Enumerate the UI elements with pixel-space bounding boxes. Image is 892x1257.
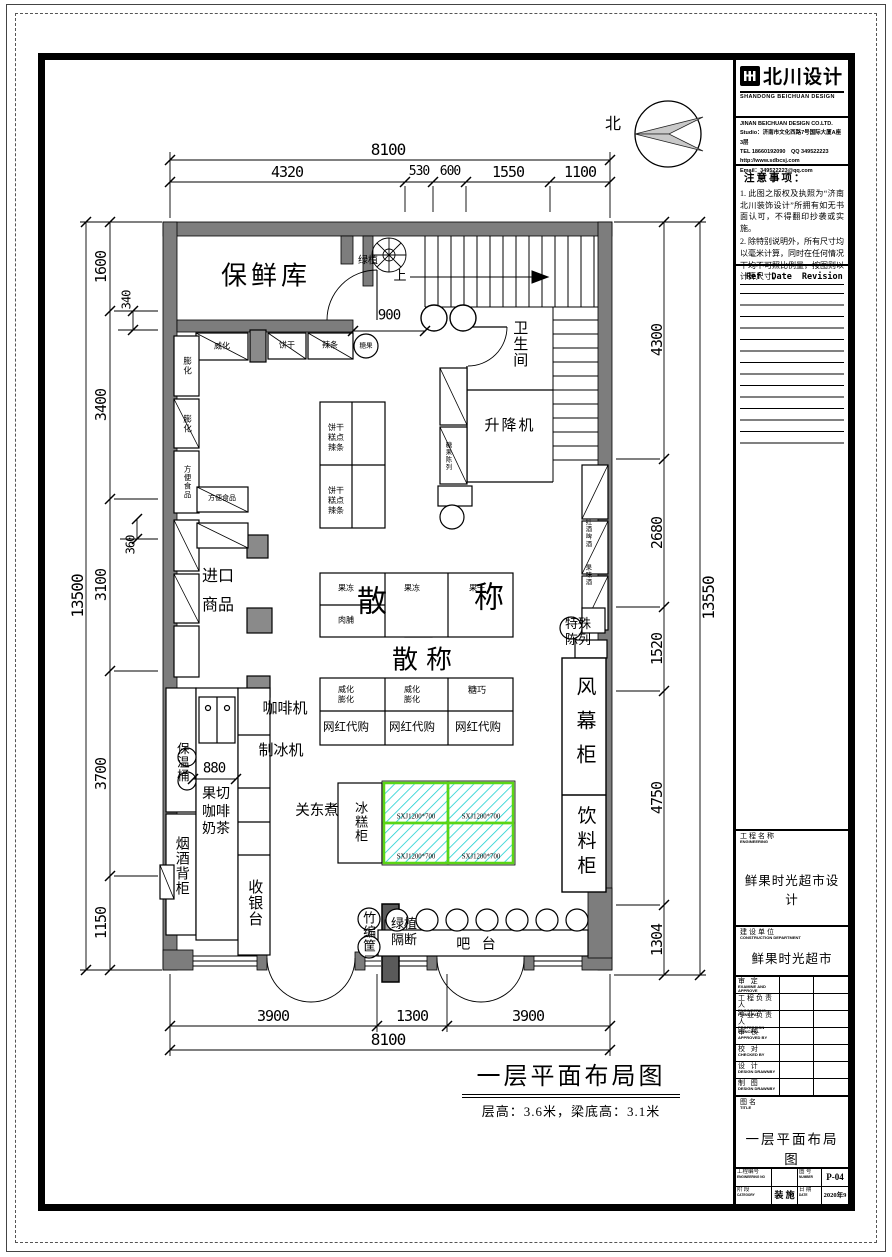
bulk-jelly-1: 果冻 xyxy=(338,585,354,594)
special-display-label: 特殊陈列 xyxy=(565,616,591,649)
fct-l1: 果切 xyxy=(202,787,230,802)
ice-cabinet-label: 冰糕柜 xyxy=(353,801,367,843)
signoff-row: 校 对CHECKED BY xyxy=(736,1045,848,1062)
title-block: 北川设计 SHANDONG BEICHUAN DESIGN JINAN BEIC… xyxy=(733,60,848,1204)
dim-right-2: 2680 xyxy=(649,517,666,549)
revision-table: Ref Date Revision xyxy=(736,266,848,831)
daigou-2: 网红代购 xyxy=(389,722,435,735)
rev-col-revision: Revision xyxy=(802,272,843,282)
dim-left-small-2: 360 xyxy=(124,536,137,555)
signoff-blank xyxy=(780,1028,814,1044)
signoff-blank xyxy=(814,977,848,994)
shelf-penghua-2: 膨化 xyxy=(182,415,191,434)
company-line: Studio：济南市文化西路7号国际大厦A座3层 xyxy=(740,129,844,148)
gc1-l2: 膨化 xyxy=(338,695,354,704)
bulk-sancheng: 散称 xyxy=(392,647,460,676)
ga2-l2: 糕点 xyxy=(328,496,344,505)
fct-l2: 咖啡 xyxy=(202,804,230,819)
signoff-blank xyxy=(814,1079,848,1095)
signoff-blank xyxy=(814,1028,848,1044)
shelf-fangbian-v: 方便食品 xyxy=(183,465,191,499)
signoff-row: 审 核APPROVED BY xyxy=(736,1028,848,1045)
daigou-1: 网红代购 xyxy=(323,722,369,735)
dim-right-total: 13550 xyxy=(700,576,718,619)
drink-cabinet-label: 饮料柜 xyxy=(574,806,595,881)
date-value: 2020年9月 xyxy=(822,1187,848,1204)
rev-col-date: Date xyxy=(771,272,791,282)
ga2-l3: 辣条 xyxy=(328,506,344,515)
room-fresh-store: 保鲜库 xyxy=(221,263,311,292)
daigou-3: 网红代购 xyxy=(455,722,501,735)
shelf-penghua-1: 膨化 xyxy=(182,357,191,376)
sheet-number: P-04 xyxy=(822,1169,848,1186)
imported-line1: 进口 xyxy=(202,568,234,585)
freezer-model-1: SXJ1200*700 xyxy=(397,813,436,820)
shelf-latiao: 辣条 xyxy=(322,342,338,351)
signoff-en: DESIGN DRAWNBY xyxy=(738,1070,777,1074)
signoff-row: 制 图DESIGN DRAWNBY xyxy=(736,1079,848,1095)
ga1-l2: 糕点 xyxy=(328,433,344,442)
project-name: 鲜果时光超市设计 xyxy=(740,870,844,908)
notes-title: 注意事项： xyxy=(744,170,844,185)
shelf-binggan: 饼干 xyxy=(279,342,295,351)
engineering-label-en: ENGINEERING xyxy=(740,840,844,844)
bulk-san: 散 xyxy=(357,586,387,619)
number-label-en: NUMBER xyxy=(799,1176,820,1179)
dim-top-2: 530 xyxy=(409,165,429,179)
signoff-blank xyxy=(814,1045,848,1061)
construction-label-en: CONSTRUCTION DEPARTMENT xyxy=(740,936,844,940)
signoff-table: 审 定EXAMINE AND APPROVE 工程负责人ENGINEERING … xyxy=(736,977,848,1097)
signoff-row: 审 定EXAMINE AND APPROVE xyxy=(736,977,848,994)
notes-section: 注意事项： 1. 此图之版权及执照为“济南北川装饰设计”所拥有如无书面认可，不得… xyxy=(736,166,848,266)
beichuan-logo-icon xyxy=(740,66,760,86)
stage-label-en: CATEGORY xyxy=(737,1194,770,1197)
gc1-l1: 威化 xyxy=(338,685,354,694)
signoff-row: 工程负责人ENGINEERING PRINCIPAL xyxy=(736,994,848,1011)
signoff-en: DESIGN DRAWNBY xyxy=(738,1087,777,1091)
ga1-l3: 辣条 xyxy=(328,443,344,452)
dim-bottom-1: 3900 xyxy=(257,1008,289,1025)
gondola-a-cell1: 饼干糕点辣条 xyxy=(328,423,344,453)
stairs-up xyxy=(410,236,598,307)
wine-beer-label: 红酒啤酒 xyxy=(584,518,591,547)
pp-l2: 隔断 xyxy=(391,932,417,947)
freezer-model-4: SXJ1200*700 xyxy=(462,853,501,860)
gc2-l1: 威化 xyxy=(404,685,420,694)
dim-bottom-2: 1300 xyxy=(396,1008,428,1025)
imported-goods-label: 进口商品 xyxy=(202,563,234,621)
sd-l1: 特殊 xyxy=(565,616,591,631)
dim-door-900: 900 xyxy=(378,308,400,323)
plant-label: 绿植 xyxy=(358,256,378,267)
signoff-en: APPROVED BY xyxy=(738,1036,777,1040)
company-line: TEL 18660192090 QQ 349522223 xyxy=(740,148,844,157)
pp-l1: 绿植 xyxy=(391,916,417,931)
bulk-jelly-2: 果冻 xyxy=(404,585,420,594)
room-toilet: 卫生间 xyxy=(511,320,528,368)
gondola-c-tangqiao: 糖巧 xyxy=(468,686,486,696)
rev-col-ref: Ref xyxy=(746,272,761,282)
caption-subtitle: 层高：3.6米，梁底高：3.1米 xyxy=(462,1101,680,1120)
bulk-jerky: 肉脯 xyxy=(338,617,354,626)
dim-top-4: 1550 xyxy=(492,164,524,181)
signoff-cn: 专业负责人 xyxy=(738,1012,777,1026)
gondola-c-cell2: 威化膨化 xyxy=(404,685,420,705)
dim-bottom-total: 8100 xyxy=(371,1031,406,1049)
date-label-en: DATE xyxy=(799,1194,820,1197)
room-lift: 升降机 xyxy=(484,418,535,435)
shelf-fangbian-h: 方便食品 xyxy=(208,495,236,503)
tobacco-cabinet-label: 烟酒背柜 xyxy=(173,836,188,896)
dim-counter-880: 880 xyxy=(203,761,225,776)
sd-l2: 陈列 xyxy=(565,632,591,647)
dim-right-5: 1304 xyxy=(649,924,666,956)
ice-maker-label: 制冰机 xyxy=(258,743,303,760)
floor-plan-sheet: { "colors": { "wall": "#7d7d7d", "freeze… xyxy=(0,0,892,1257)
caption-title: 一层平面布局图 xyxy=(462,1056,680,1098)
logo-text: 北川设计 xyxy=(763,62,843,89)
note-item: 1. 此图之版权及执照为“济南北川装饰设计”所拥有如无书面认可，不得翻印抄袭或实… xyxy=(740,188,844,234)
ga2-l1: 饼干 xyxy=(328,486,344,495)
eng-no-label-en: ENGINEERING NO xyxy=(737,1176,770,1179)
dim-left-3: 3100 xyxy=(93,569,110,601)
shelf-weihua: 威化 xyxy=(214,343,230,352)
engineering-section: 工程名称ENGINEERING 鲜果时光超市设计 xyxy=(736,831,848,927)
gondola-a-cell2: 饼干糕点辣条 xyxy=(328,486,344,516)
freezer-model-3: SXJ1200*700 xyxy=(397,853,436,860)
dim-top-1: 4320 xyxy=(271,164,303,181)
dim-bottom-3: 3900 xyxy=(512,1008,544,1025)
fct-l3: 奶茶 xyxy=(202,822,230,837)
dim-left-2: 3400 xyxy=(93,389,110,421)
gondola-c-cell1: 威化膨化 xyxy=(338,685,354,705)
eng-no-blank xyxy=(772,1169,798,1186)
company-line: JINAN BEICHUAN DESIGN CO.LTD. xyxy=(740,120,844,129)
signoff-blank xyxy=(780,1045,814,1061)
coffee-machine-label: 咖啡机 xyxy=(262,701,307,718)
ga1-l1: 饼干 xyxy=(328,423,344,432)
stairs-up-label: 上 xyxy=(393,269,406,283)
gc2-l2: 膨化 xyxy=(404,695,420,704)
freezer-model-2: SXJ1200*700 xyxy=(462,813,501,820)
plant-partition-label: 绿植隔断 xyxy=(391,916,417,949)
signoff-en: EXAMINE AND APPROVE xyxy=(738,985,777,993)
company-info: JINAN BEICHUAN DESIGN CO.LTD. Studio：济南市… xyxy=(736,118,848,166)
oden-label: 关东煮 xyxy=(295,804,339,820)
bulk-cheng: 称 xyxy=(474,582,504,615)
logo-subtext: SHANDONG BEICHUAN DESIGN xyxy=(740,94,844,100)
dim-right-1: 4300 xyxy=(649,324,666,356)
bar-label: 吧 台 xyxy=(456,937,500,952)
fruit-coffee-tea-label: 果切咖啡奶茶 xyxy=(202,786,230,839)
signoff-row: 设 计DESIGN DRAWNBY xyxy=(736,1062,848,1079)
sheet-title-label: 图名 xyxy=(740,1099,844,1106)
shelf-tangguo: 糖果 xyxy=(360,342,373,349)
fruit-wine-label: 果味酒 xyxy=(584,564,591,586)
sheet-title-label-en: TITLE xyxy=(740,1106,844,1110)
dim-left-total: 13500 xyxy=(69,574,87,617)
thermos-label: 保温桶 xyxy=(174,742,188,783)
stairs-right xyxy=(553,307,598,482)
signoff-blank xyxy=(780,977,814,994)
signoff-blank xyxy=(814,1062,848,1078)
dim-top-3: 600 xyxy=(440,165,460,179)
dim-right-4: 4750 xyxy=(649,782,666,814)
dim-left-1: 1600 xyxy=(93,251,110,283)
bamboo-basket-label: 竹编筐 xyxy=(361,911,375,953)
dim-top-5: 1100 xyxy=(564,164,596,181)
air-curtain-label: 风幕柜 xyxy=(573,676,595,778)
title-block-footer: 工程编号ENGINEERING NO 图 号NUMBER P-04 阶 段CAT… xyxy=(736,1169,848,1204)
cashier-label: 收银台 xyxy=(246,879,263,927)
imported-line2: 商品 xyxy=(202,597,234,614)
dim-top-total: 8100 xyxy=(371,141,406,159)
signoff-blank xyxy=(780,1062,814,1078)
sheet-title-value: 一层平面布局图 xyxy=(740,1128,844,1168)
dim-left-5: 1150 xyxy=(93,907,110,939)
signoff-en: CHECKED BY xyxy=(738,1053,777,1057)
construction-section: 建设单位CONSTRUCTION DEPARTMENT 鲜果时光超市 xyxy=(736,927,848,977)
revision-rows xyxy=(740,293,844,445)
north-compass-icon xyxy=(635,101,703,167)
dim-left-4: 3700 xyxy=(93,758,110,790)
signoff-cn: 工程负责人 xyxy=(738,995,777,1009)
signoff-row: 专业负责人PROFESSION PRINCIPAL xyxy=(736,1011,848,1028)
stage-value: 装 施 xyxy=(772,1187,798,1204)
north-label: 北 xyxy=(605,116,621,134)
drawing-caption: 一层平面布局图 层高：3.6米，梁底高：3.1米 xyxy=(462,1056,680,1120)
title-block-logo: 北川设计 SHANDONG BEICHUAN DESIGN xyxy=(736,60,848,118)
sheet-title-section: 图名TITLE 一层平面布局图 xyxy=(736,1097,848,1169)
signoff-blank xyxy=(780,1079,814,1095)
candy-shelf-label: 糖果陈列 xyxy=(444,441,451,470)
client-name: 鲜果时光超市 xyxy=(740,948,844,967)
dim-left-small-1: 340 xyxy=(120,291,133,310)
dim-right-3: 1520 xyxy=(649,633,666,665)
